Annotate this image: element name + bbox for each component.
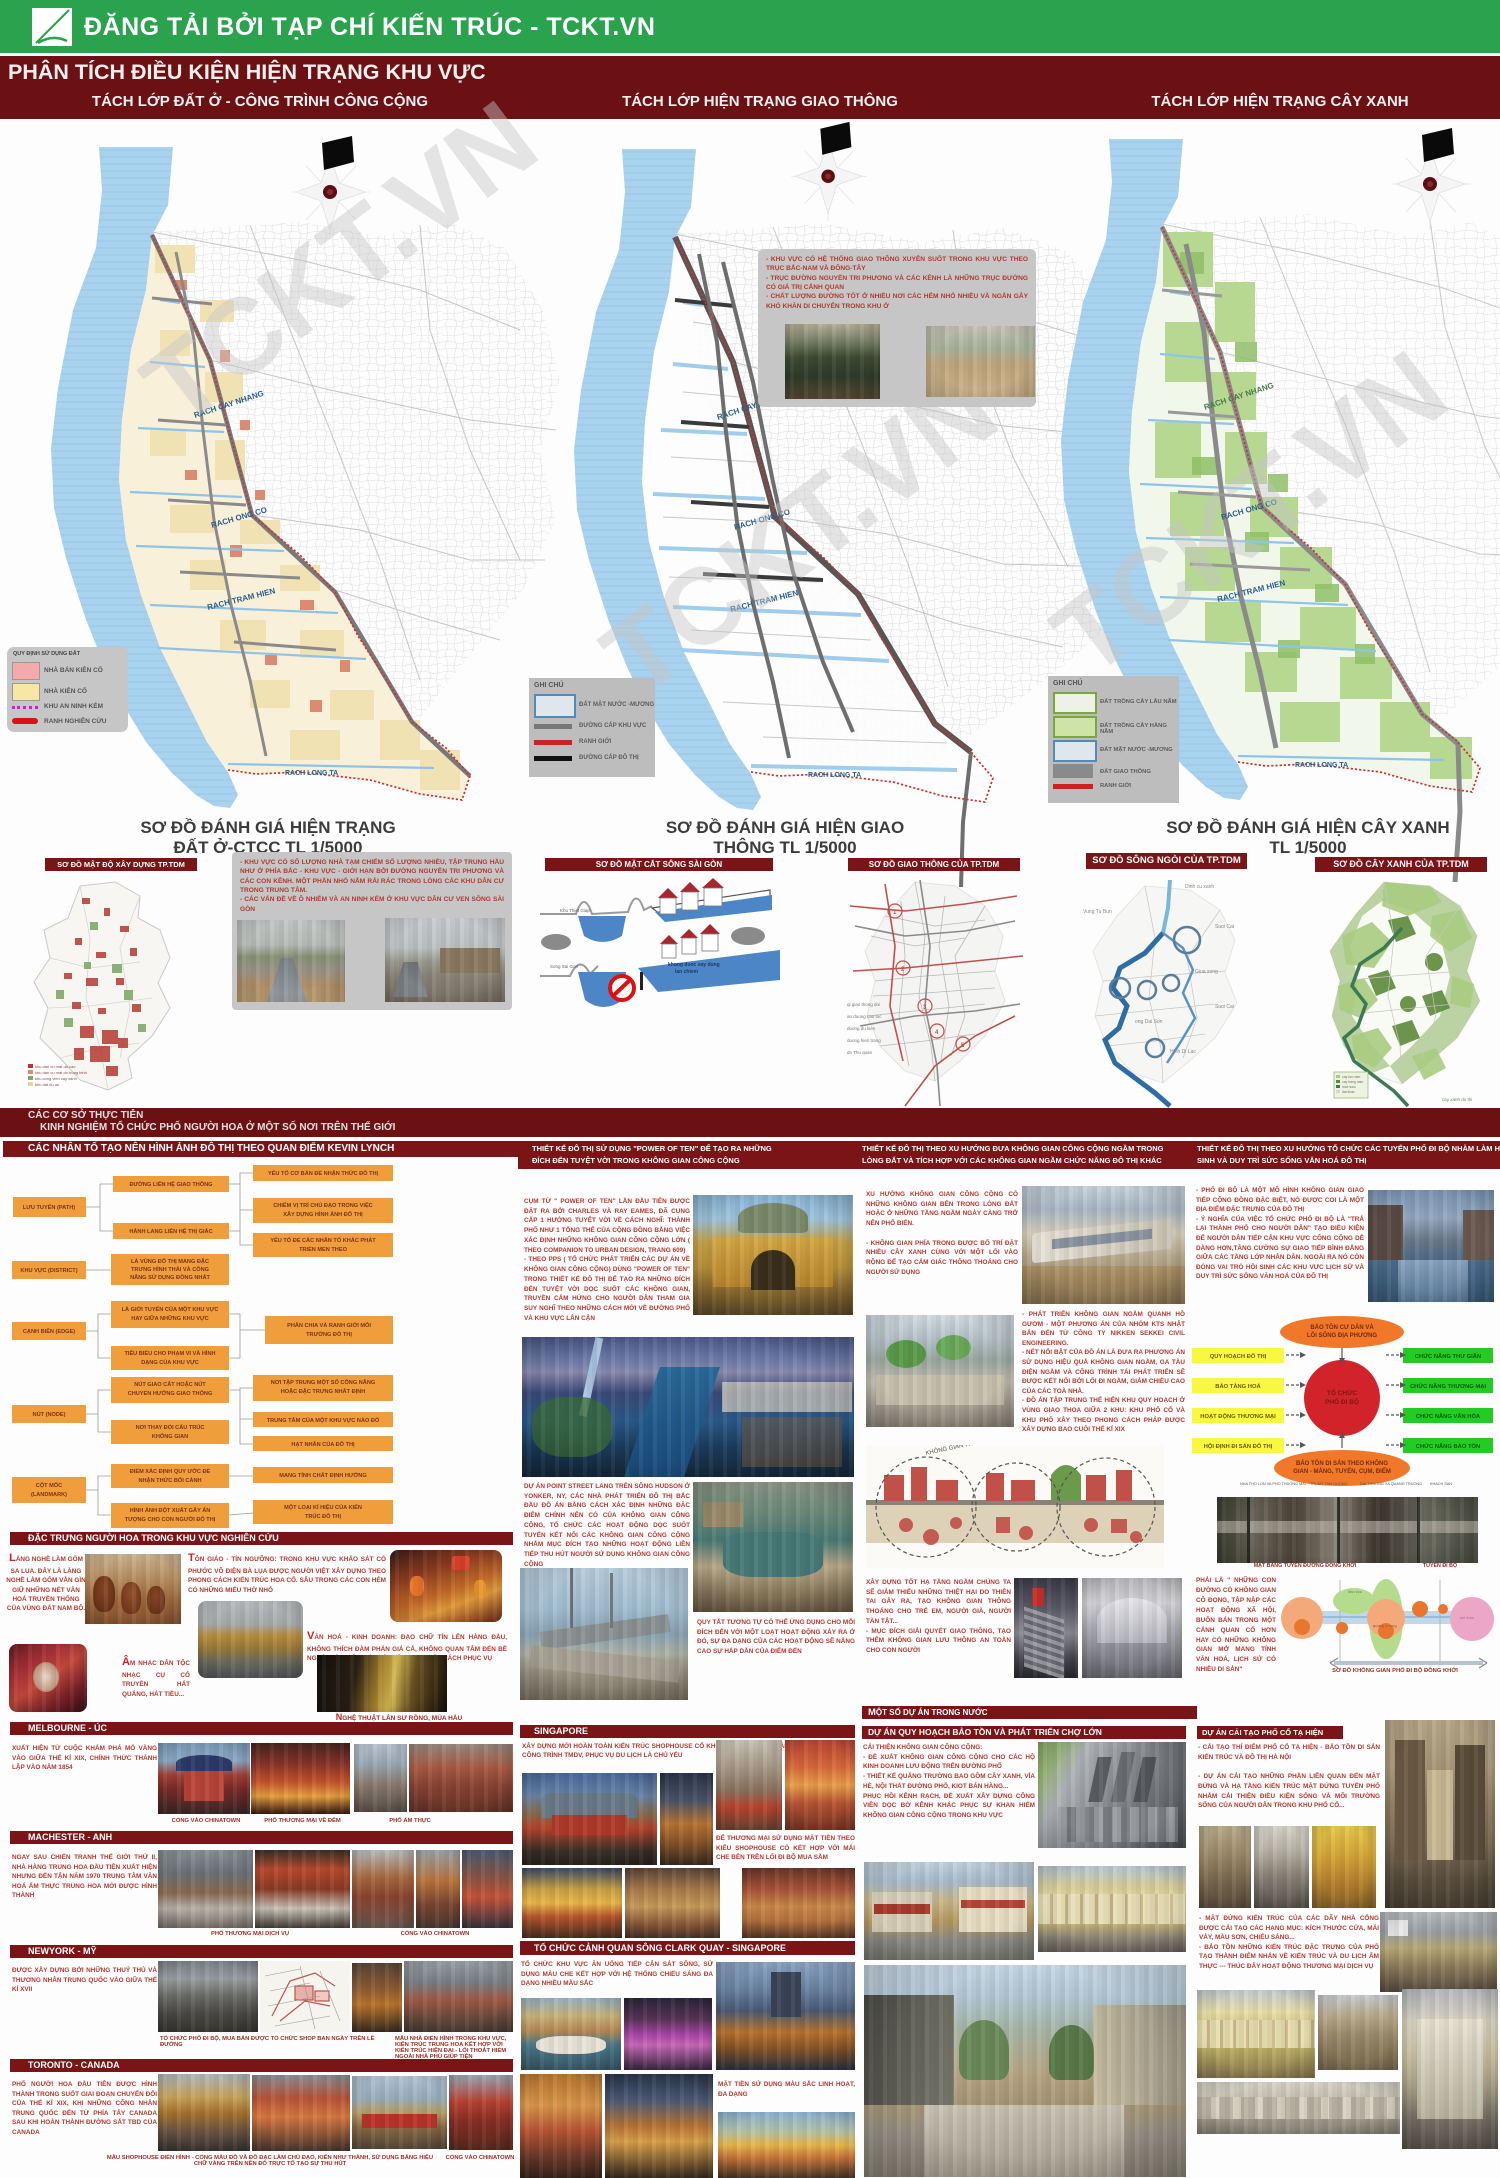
svg-text:NƠI THAY ĐỔI CẤU TRÚC: NƠI THAY ĐỔI CẤU TRÚC xyxy=(136,1424,205,1431)
svg-text:NƠI TẬP TRUNG MỘT SỐ CÔNG NĂNG: NƠI TẬP TRUNG MỘT SỐ CÔNG NĂNG xyxy=(271,1378,375,1386)
svg-text:TỔ CHỨC: TỔ CHỨC xyxy=(1327,1388,1358,1397)
svg-text:khu dat du an: khu dat du an xyxy=(35,1082,59,1087)
svg-text:Hinh Di Lac: Hinh Di Lac xyxy=(1170,1049,1196,1055)
svg-text:Vung Tu Bun: Vung Tu Bun xyxy=(1083,909,1112,915)
svg-text:HỘI ĐỊNH ĐI SẢN ĐÔ THỊ: HỘI ĐỊNH ĐI SẢN ĐÔ THỊ xyxy=(1204,1442,1273,1450)
svg-text:CHUYỂN HƯỚNG GIAO THÔNG: CHUYỂN HƯỚNG GIAO THÔNG xyxy=(128,1389,213,1397)
svg-text:(LANDMARK): (LANDMARK) xyxy=(31,1492,67,1498)
svg-text:ket thuc: ket thuc xyxy=(1460,1615,1474,1620)
svg-text:lan chiem: lan chiem xyxy=(675,969,699,975)
svg-text:NĂNG SỬ DỤNG ĐỒNG NHẤT: NĂNG SỬ DỤNG ĐỒNG NHẤT xyxy=(130,1274,210,1281)
svg-text:TRIỂN MEN THEO: TRIỂN MEN THEO xyxy=(299,1246,348,1253)
svg-text:Suoi Cat: Suoi Cat xyxy=(1215,924,1235,930)
svg-text:NHẬN THỨC BỐI CẢNH: NHẬN THỨC BỐI CẢNH xyxy=(138,1477,201,1484)
svg-text:TƯỢNG CHO CON NGƯỜI ĐÔ THỊ: TƯỢNG CHO CON NGƯỜI ĐÔ THỊ xyxy=(125,1515,216,1523)
svg-text:cay lau nam: cay lau nam xyxy=(1342,1075,1360,1079)
svg-text:KHÔNG GIAN TRUNG TÂM: KHÔNG GIAN TRUNG TÂM xyxy=(925,1445,1000,1457)
svg-text:TRÚC ĐÔ THỊ: TRÚC ĐÔ THỊ xyxy=(305,1512,341,1520)
svg-text:GIAN - MẢNG, TUYẾN, CỤM, ĐIỂM: GIAN - MẢNG, TUYẾN, CỤM, ĐIỂM xyxy=(1293,1468,1391,1475)
svg-text:CHỨC NĂNG THƯ GIÃN: CHỨC NĂNG THƯ GIÃN xyxy=(1415,1353,1481,1360)
svg-text:MỘT LOẠI KÍ HIỆU CỦA KIẾN: MỘT LOẠI KÍ HIỆU CỦA KIẾN xyxy=(284,1503,362,1511)
svg-text:QUY HOẠCH ĐÔ THỊ: QUY HOẠCH ĐÔ THỊ xyxy=(1210,1352,1267,1360)
svg-text:Khu Thiet Giap: Khu Thiet Giap xyxy=(560,908,590,913)
svg-text:LÀ VÙNG ĐÔ THỊ MANG ĐẶC: LÀ VÙNG ĐÔ THỊ MANG ĐẶC xyxy=(131,1257,209,1265)
svg-text:HÌNH ẢNH ĐỘT XUẤT GÂY ẤN: HÌNH ẢNH ĐỘT XUẤT GÂY ẤN xyxy=(130,1506,211,1514)
svg-text:khu dan cu mat do trung binh: khu dan cu mat do trung binh xyxy=(35,1070,87,1075)
svg-text:Suoi Cai: Suoi Cai xyxy=(1215,1004,1234,1010)
svg-text:CHỨC NĂNG VĂN HÓA: CHỨC NĂNG VĂN HÓA xyxy=(1416,1412,1481,1420)
svg-text:NÚT GIAO CẮT HOẶC NÚT: NÚT GIAO CẮT HOẶC NÚT xyxy=(134,1380,206,1388)
svg-text:HÀNH LANG LIÊN HỆ THỊ GIÁC: HÀNH LANG LIÊN HỆ THỊ GIÁC xyxy=(129,1227,212,1235)
svg-text:ql giao thong doi: ql giao thong doi xyxy=(847,1002,880,1007)
svg-text:CẠNH BIÊN (EDGE): CẠNH BIÊN (EDGE) xyxy=(23,1327,75,1335)
svg-text:khu dan cu mat do cao: khu dan cu mat do cao xyxy=(35,1064,76,1069)
svg-text:ĐIỂM XÁC ĐỊNH QUY ƯỚC ĐỂ: ĐIỂM XÁC ĐỊNH QUY ƯỚC ĐỂ xyxy=(130,1467,211,1475)
svg-text:DẠNG CỦA KHU VỰC: DẠNG CỦA KHU VỰC xyxy=(141,1359,199,1366)
svg-text:XÂY DỰNG HÌNH ẢNH ĐÔ THỊ: XÂY DỰNG HÌNH ẢNH ĐÔ THỊ xyxy=(283,1210,363,1218)
svg-text:khong duoc xay dung: khong duoc xay dung xyxy=(668,962,720,968)
svg-text:CỘT MỐC: CỘT MỐC xyxy=(36,1481,62,1489)
svg-text:dat khac: dat khac xyxy=(1342,1090,1355,1094)
svg-text:TRUNG TÂM CỦA MỘT KHU VỰC NÀO: TRUNG TÂM CỦA MỘT KHU VỰC NÀO ĐÓ xyxy=(267,1416,380,1424)
svg-text:RACH LONG TA: RACH LONG TA xyxy=(1295,762,1348,769)
svg-text:LÀ GIỚI TUYẾN CỦA MỘT KHU VỰC: LÀ GIỚI TUYẾN CỦA MỘT KHU VỰC xyxy=(122,1305,219,1313)
svg-text:BẢO TỒN CƯ DÂN VÀ: BẢO TỒN CƯ DÂN VÀ xyxy=(1310,1324,1374,1331)
svg-text:quang truong: quang truong xyxy=(1373,1623,1397,1628)
svg-text:TRƯỜNG ĐÔ THỊ: TRƯỜNG ĐÔ THỊ xyxy=(306,1330,352,1338)
svg-text:LỐI SỐNG ĐỊA PHƯƠNG: LỐI SỐNG ĐỊA PHƯƠNG xyxy=(1307,1332,1378,1339)
svg-text:cay xanh do thi: cay xanh do thi xyxy=(1442,1097,1472,1102)
svg-text:NÚT (NODE): NÚT (NODE) xyxy=(33,1411,66,1418)
svg-text:mat nuoc: mat nuoc xyxy=(1342,1085,1356,1089)
svg-text:cay hang nam: cay hang nam xyxy=(1342,1080,1363,1084)
svg-text:RACH LONG TA: RACH LONG TA xyxy=(285,770,338,777)
svg-text:HOẠT ĐỘNG THƯƠNG MẠI: HOẠT ĐỘNG THƯƠNG MẠI xyxy=(1200,1412,1276,1420)
svg-text:YẾU TỐ CƠ BẢN ĐỂ NHẬN THỨC ĐÔ: YẾU TỐ CƠ BẢN ĐỂ NHẬN THỨC ĐÔ THỊ xyxy=(268,1169,379,1177)
svg-text:MANG TÍNH CHẤT ĐỊNH HƯỚNG: MANG TÍNH CHẤT ĐỊNH HƯỚNG xyxy=(279,1471,366,1479)
svg-text:BẢO TỒN DI SẢN THEO KHÔNG: BẢO TỒN DI SẢN THEO KHÔNG xyxy=(1296,1459,1388,1467)
svg-text:CHIẾM VỊ TRÍ CHỦ ĐẠO TRONG VIỆ: CHIẾM VỊ TRÍ CHỦ ĐẠO TRONG VIỆC xyxy=(273,1201,372,1209)
svg-text:HẠT NHÂN CỦA ĐÔ THỊ: HẠT NHÂN CỦA ĐÔ THỊ xyxy=(291,1440,355,1448)
svg-text:TRƯNG HÌNH THÁI VÀ CÔNG: TRƯNG HÌNH THÁI VÀ CÔNG xyxy=(131,1265,209,1273)
svg-text:dn Thu quan: dn Thu quan xyxy=(847,1050,873,1055)
svg-text:HAY GIỮA NHỮNG KHU VỰC: HAY GIỮA NHỮNG KHU VỰC xyxy=(131,1315,208,1322)
svg-text:khu cong vien cay xanh: khu cong vien cay xanh xyxy=(35,1076,77,1081)
svg-text:KHU VỰC (DISTRICT): KHU VỰC (DISTRICT) xyxy=(20,1268,77,1274)
svg-text:Giua song: Giua song xyxy=(1195,969,1218,975)
svg-text:Dinh cu xanh: Dinh cu xanh xyxy=(1185,884,1214,890)
svg-text:CHỨC NĂNG THƯƠNG MẠI: CHỨC NĂNG THƯƠNG MẠI xyxy=(1410,1383,1486,1390)
svg-text:an duong cao toc: an duong cao toc xyxy=(847,1014,882,1019)
svg-text:YẾU TỐ ĐỂ CÁC NHÂN TỐ KHÁC PHÁ: YẾU TỐ ĐỂ CÁC NHÂN TỐ KHÁC PHÁT xyxy=(270,1237,376,1244)
svg-text:PHÂN CHIA VÀ RANH GIỚI MÔI: PHÂN CHIA VÀ RANH GIỚI MÔI xyxy=(287,1321,371,1329)
svg-text:KHÔNG GIAN: KHÔNG GIAN xyxy=(152,1432,188,1440)
svg-text:Song Sai Gon: Song Sai Gon xyxy=(550,964,579,969)
svg-text:ĐƯỜNG LIÊN HỆ GIAO THÔNG: ĐƯỜNG LIÊN HỆ GIAO THÔNG xyxy=(129,1180,212,1188)
svg-text:CHỨC NĂNG BẢO TỒN: CHỨC NĂNG BẢO TỒN xyxy=(1416,1443,1480,1450)
svg-text:khu vuc: khu vuc xyxy=(1348,1589,1362,1594)
svg-text:LƯU TUYẾN (PATH): LƯU TUYẾN (PATH) xyxy=(23,1204,75,1211)
svg-text:ong Dai Son: ong Dai Son xyxy=(1135,1019,1163,1025)
svg-text:BẢO TÀNG HOÁ: BẢO TÀNG HOÁ xyxy=(1215,1383,1261,1390)
svg-text:TIÊU BIỂU CHO PHẠM VI VÀ HÌNH: TIÊU BIỂU CHO PHẠM VI VÀ HÌNH xyxy=(124,1349,215,1357)
svg-text:duong hien trang: duong hien trang xyxy=(847,1038,881,1043)
svg-text:duong du kien: duong du kien xyxy=(847,1026,876,1031)
svg-text:HOẶC ĐẶC TRƯNG NHẤT ĐỊNH: HOẶC ĐẶC TRƯNG NHẤT ĐỊNH xyxy=(281,1388,366,1395)
svg-text:RACH LONG TA: RACH LONG TA xyxy=(808,772,861,779)
